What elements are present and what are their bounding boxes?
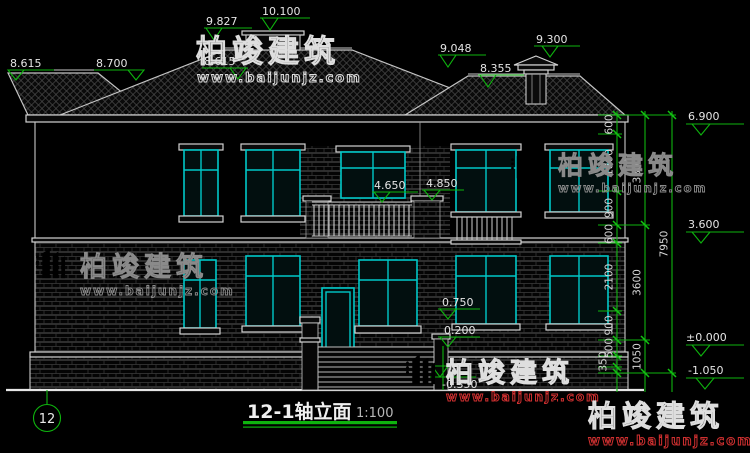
level-value: 6.900 [688,110,720,123]
level-value: 3.600 [688,218,720,231]
window [241,144,305,222]
watermark-brand: 柏竣建筑 [588,399,724,433]
elevation-marker: 3.600 [686,218,744,243]
watermark-brand: 柏竣建筑 [446,357,574,389]
axis-bubble: 12 [34,390,61,432]
dim-value: 1050 [632,343,644,370]
watermark-bottom-right: 柏竣建筑 www.baijunjz.com [540,399,750,449]
dim-value: 600 [604,224,616,244]
elevation-marker: 10.100 [260,5,310,30]
drawing-scale: 1:100 [356,406,393,421]
level-value: 9.300 [536,33,568,46]
title-underline [243,421,397,424]
watermark-url: www.baijunjz.com [558,181,707,195]
dim-value: 7950 [659,231,671,258]
level-value: 4.850 [426,177,458,190]
level-value: 4.650 [374,179,406,192]
roof-right-wing [405,76,625,115]
level-value: -1.050 [688,364,723,377]
watermark-brand: 柏竣建筑 [558,151,678,180]
window [452,256,520,330]
brand-logo-icon [540,399,579,439]
floor-band [32,238,628,242]
level-value: 8.700 [96,57,128,70]
elevation-marker: -1.050 [686,364,744,389]
watermark-brand: 柏竣建筑 [80,251,208,283]
window-juliet [451,144,521,244]
drawing-canvas: 600 1800 900 600 2100 900 500 350 3300 3… [0,0,750,453]
title-underline-thin [243,427,397,428]
drawing-title: 12-1轴立面 [247,400,352,423]
window [242,256,304,332]
elevation-marker: 9.300 [534,33,580,57]
level-value: 0.750 [442,296,474,309]
level-value: ±0.000 [686,331,727,344]
elevation-marker: 9.048 [438,42,486,67]
dim-value: 350 [598,351,610,371]
elevation-marker: ±0.000 [686,331,744,356]
elevation-marker: 6.900 [686,110,744,135]
watermark-url: www.baijunjz.com [80,284,235,298]
watermark-right-middle: 柏竣建筑 www.baijunjz.com [509,151,707,195]
level-value: 9.048 [440,42,472,55]
dim-value: 900 [604,315,616,335]
watermark-url: www.baijunjz.com [197,71,362,86]
dim-value: 3600 [632,269,644,296]
level-value: 0.200 [444,324,476,337]
eave-band [26,115,628,122]
watermark-url: www.baijunjz.com [588,434,750,449]
window [546,256,612,330]
window [355,260,421,333]
level-value: 9.827 [206,15,238,28]
cad-elevation-drawing: 600 1800 900 600 2100 900 500 350 3300 3… [0,0,750,453]
level-value: 8.615 [10,57,42,70]
dim-value: 2100 [604,264,616,291]
window [179,144,223,222]
watermark-brand: 柏竣建筑 [196,34,340,70]
dim-value: 900 [604,198,616,218]
axis-number: 12 [39,412,56,427]
level-value: 10.100 [262,5,301,18]
title-block: 12-1轴立面 1:100 [243,400,397,428]
watermark-url: www.baijunjz.com [446,390,601,404]
level-value: 8.355 [480,62,512,75]
dim-value: 600 [604,114,616,134]
